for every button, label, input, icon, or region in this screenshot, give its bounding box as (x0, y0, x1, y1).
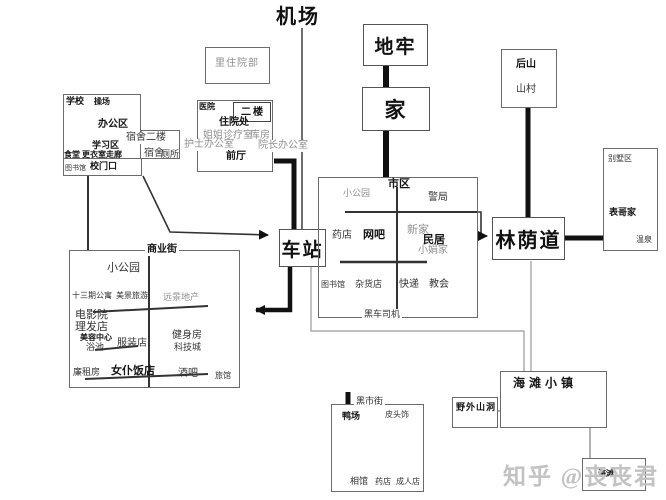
node-dungeon: 地牢 (363, 24, 428, 66)
label-dorm-2f: 宿舍二楼 (124, 132, 168, 144)
label-nurse-office: 护士办公室 (182, 139, 236, 151)
label-barber: 理发店 (75, 321, 108, 334)
label-adult-shop: 成人店 (396, 477, 420, 486)
label-cinema: 电影院 (75, 309, 108, 322)
label-hospital: 医院 (199, 102, 215, 111)
label-commercial-street: 商业街 (145, 244, 179, 256)
label-home: 家 (385, 94, 408, 124)
label-wild-cave: 野外山洞 (456, 402, 496, 412)
label-hot-spring: 温泉 (636, 235, 652, 244)
zhihu-watermark: 知乎 @丧丧君 (503, 457, 659, 491)
label-photo-studio: 相馆 (350, 476, 368, 486)
node-home: 家 (362, 87, 430, 131)
game-map-diagram: 机场 地牢 家 后山 山村 别墅区 表哥家 温泉 林荫道 车站 里住院部 医院 … (0, 0, 666, 500)
label-locker-corridor: 更衣室走廊 (82, 150, 122, 159)
node-downtown (318, 177, 478, 318)
label-beauty-center: 美容中心 (80, 333, 112, 342)
label-downtown-pharmacy: 药店 (332, 230, 352, 242)
label-bm-pharmacy: 药店 (375, 477, 391, 486)
label-office-area: 办公区 (98, 119, 128, 131)
label-express: 快递 (399, 279, 419, 291)
label-villa-area: 别墅区 (608, 154, 632, 163)
label-director-office: 院长办公室 (256, 140, 310, 152)
label-bath: 浴池 (86, 342, 104, 352)
label-maid-restaurant: 女仆饭店 (111, 365, 155, 378)
label-commercial-park: 小公园 (107, 262, 140, 275)
label-tech-city: 科技城 (174, 342, 201, 352)
label-travel-agency: 美景旅游 (116, 291, 148, 300)
label-downtown-park: 小公园 (343, 188, 370, 198)
label-mountain-village: 山村 (516, 84, 536, 96)
label-beach-town: 海滩小镇 (513, 377, 577, 391)
label-clothing-store: 服装店 (117, 338, 147, 350)
label-church: 教会 (429, 279, 449, 291)
label-canteen: 食堂 (64, 150, 80, 159)
label-school: 学校 (66, 96, 84, 106)
label-cousin-home: 表哥家 (609, 207, 636, 217)
label-back-hill: 后山 (516, 59, 536, 71)
label-xiaojuan-home: 小娟家 (418, 245, 448, 257)
label-front-hall: 前厅 (226, 151, 246, 163)
label-dungeon: 地牢 (374, 32, 416, 59)
label-duck-farm: 鸭场 (342, 411, 360, 421)
line-station-commercial-arrow (256, 267, 290, 310)
label-admission: 住院处 (219, 117, 249, 129)
label-bar: 酒吧 (178, 368, 198, 380)
label-police: 警局 (428, 192, 448, 204)
label-realty: 远景地产 (163, 292, 199, 302)
line-school-station-arrow (143, 176, 268, 235)
label-school-gate: 校门口 (90, 161, 117, 171)
label-school-library: 图书馆 (65, 164, 86, 172)
line-downtown-boulevard-arrow (477, 212, 487, 236)
label-black-car-driver: 黑车司机 (362, 309, 402, 319)
line-hospital-station (274, 161, 294, 229)
label-net-cafe: 网吧 (363, 229, 385, 242)
label-gym: 健身房 (172, 330, 202, 342)
label-hotel: 旅馆 (215, 371, 231, 380)
label-grocery: 杂货店 (355, 279, 382, 289)
label-cheap-rental: 廉租房 (73, 367, 100, 377)
label-boulevard: 林荫道 (496, 224, 562, 253)
label-headwear-shop: 皮头饰 (385, 410, 409, 419)
label-black-market: 黑市街 (354, 396, 385, 406)
label-apartment-13: 十三期公寓 (72, 291, 112, 300)
label-study-area: 学习区 (92, 140, 119, 150)
label-downtown: 市区 (388, 178, 410, 191)
label-playground: 操场 (94, 97, 110, 106)
label-airport: 机场 (276, 6, 320, 29)
label-toilet: 厕所 (161, 149, 179, 159)
label-inpatient-ward: 里住院部 (215, 58, 259, 70)
node-back-hill (501, 49, 557, 108)
label-downtown-library: 图书馆 (321, 280, 345, 289)
node-boulevard: 林荫道 (492, 217, 565, 260)
